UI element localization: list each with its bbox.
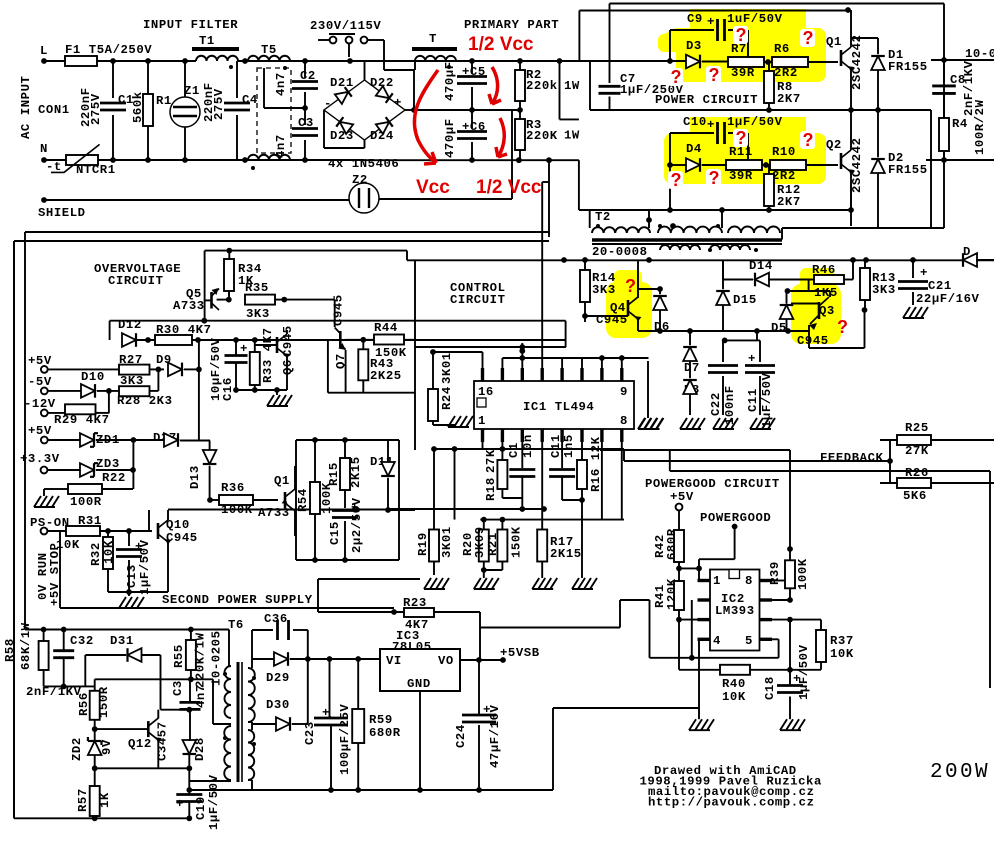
svg-text:R54: R54 <box>296 488 310 512</box>
svg-text:AC INPUT: AC INPUT <box>19 75 33 139</box>
svg-text:39R: 39R <box>729 169 753 183</box>
svg-text:10K: 10K <box>830 647 854 661</box>
svg-text:3K3: 3K3 <box>872 283 896 297</box>
svg-text:47µF/16V: 47µF/16V <box>488 704 502 768</box>
svg-text:Q2: Q2 <box>826 138 842 152</box>
svg-text:68K/1W: 68K/1W <box>19 622 33 670</box>
svg-text:+3.3V: +3.3V <box>20 452 60 466</box>
svg-text:-12V: -12V <box>24 397 56 411</box>
svg-text:C32: C32 <box>70 634 94 648</box>
svg-text:1K5: 1K5 <box>814 286 838 300</box>
svg-text:4x 1N5406: 4x 1N5406 <box>328 157 399 171</box>
svg-text:C3: C3 <box>298 116 314 130</box>
svg-text:R33 4K7: R33 4K7 <box>261 327 275 383</box>
svg-text:4n7: 4n7 <box>274 134 288 158</box>
svg-text:39R: 39R <box>731 66 755 80</box>
svg-text:16: 16 <box>478 385 494 399</box>
svg-text:R57: R57 <box>76 788 90 812</box>
svg-text:10n: 10n <box>521 434 535 458</box>
svg-text:?: ? <box>625 276 636 296</box>
svg-text:R15: R15 <box>327 462 341 486</box>
svg-text:200W: 200W <box>930 761 990 784</box>
svg-text:R40: R40 <box>722 677 746 691</box>
svg-text:+: + <box>707 118 715 132</box>
svg-text:1µF/50V: 1µF/50V <box>727 115 783 129</box>
svg-text:D30: D30 <box>266 698 290 712</box>
svg-text:C9: C9 <box>687 12 703 26</box>
svg-text:Vcc: Vcc <box>416 177 450 198</box>
svg-text:CIRCUIT: CIRCUIT <box>450 293 506 307</box>
svg-text:?: ? <box>803 28 814 48</box>
svg-text:C10: C10 <box>683 115 707 129</box>
svg-text:C19: C19 <box>194 796 208 820</box>
svg-text:4: 4 <box>713 634 721 648</box>
svg-text:D21: D21 <box>330 76 354 90</box>
svg-text:+: + <box>240 342 248 356</box>
svg-text:T1: T1 <box>199 34 215 48</box>
svg-text:1µF/50V: 1µF/50V <box>138 539 152 595</box>
svg-text:D3: D3 <box>686 39 702 53</box>
svg-text:C945: C945 <box>797 334 829 348</box>
svg-text:R19: R19 <box>416 532 430 556</box>
svg-text:C22: C22 <box>709 392 723 416</box>
svg-text:R25: R25 <box>905 421 929 435</box>
svg-text:27K: 27K <box>905 444 929 458</box>
svg-text:D13: D13 <box>188 465 202 489</box>
svg-text:?: ? <box>837 317 848 337</box>
svg-text:A733: A733 <box>173 299 205 313</box>
svg-text:+: + <box>176 797 184 811</box>
svg-text:3K3: 3K3 <box>246 307 270 321</box>
svg-text:1µF/50V: 1µF/50V <box>207 774 221 830</box>
svg-text:C21: C21 <box>928 279 952 293</box>
svg-text:C16: C16 <box>221 377 235 401</box>
svg-text:LM393: LM393 <box>715 604 755 618</box>
svg-text:4n7: 4n7 <box>194 684 208 708</box>
svg-text:+: + <box>920 266 928 280</box>
svg-text:Q3: Q3 <box>819 304 835 318</box>
svg-text:Q12: Q12 <box>128 737 152 751</box>
svg-text:20-0008: 20-0008 <box>592 245 648 259</box>
svg-text:D12: D12 <box>118 318 142 332</box>
svg-text:1K: 1K <box>98 792 112 808</box>
svg-text:R44: R44 <box>374 321 398 335</box>
svg-text:Q1: Q1 <box>274 474 290 488</box>
svg-text:1/2 Vcc: 1/2 Vcc <box>468 34 534 55</box>
svg-text:+: + <box>394 96 402 110</box>
svg-text:C36: C36 <box>264 612 288 626</box>
svg-text:C1: C1 <box>507 442 521 458</box>
svg-text:150K: 150K <box>510 526 524 558</box>
svg-text:3K09: 3K09 <box>473 526 487 558</box>
svg-text:2R2: 2R2 <box>774 66 798 80</box>
svg-text:470µF: 470µF <box>443 61 457 101</box>
svg-text:R32: R32 <box>89 542 103 566</box>
svg-text:T2: T2 <box>595 210 611 224</box>
svg-text:C945: C945 <box>166 531 198 545</box>
svg-text:?: ? <box>709 65 720 85</box>
svg-text:120K: 120K <box>665 578 679 610</box>
svg-text:3K01: 3K01 <box>440 526 454 558</box>
svg-text:2K7: 2K7 <box>777 92 801 106</box>
svg-text:10K: 10K <box>722 690 746 704</box>
svg-text:POWERGOOD: POWERGOOD <box>700 511 771 525</box>
svg-text:?: ? <box>709 168 720 188</box>
svg-text:+5V: +5V <box>28 354 52 368</box>
svg-text:PS-ON: PS-ON <box>30 516 70 530</box>
svg-text:SECOND POWER SUPPLY: SECOND POWER SUPPLY <box>162 593 313 607</box>
svg-text:1: 1 <box>713 574 721 588</box>
svg-text:+5V: +5V <box>670 490 694 504</box>
svg-text:R18: R18 <box>484 477 498 501</box>
svg-text:680R: 680R <box>665 528 679 560</box>
svg-text:ZD2: ZD2 <box>70 737 84 761</box>
svg-text:+: + <box>748 352 756 366</box>
svg-text:275V: 275V <box>212 88 226 120</box>
svg-text:2K15: 2K15 <box>550 547 582 561</box>
svg-text:R55: R55 <box>172 644 186 668</box>
svg-text:R29 4K7: R29 4K7 <box>54 413 110 427</box>
svg-text:R16 12K: R16 12K <box>589 436 603 492</box>
svg-text:2µ2/50V: 2µ2/50V <box>350 497 364 553</box>
svg-text:C11: C11 <box>746 388 760 412</box>
svg-text:R6: R6 <box>774 42 790 56</box>
svg-text:-: - <box>324 97 332 111</box>
svg-text:VI: VI <box>386 654 402 668</box>
svg-text:C3: C3 <box>171 680 185 696</box>
svg-text:R11: R11 <box>729 145 753 159</box>
svg-text:C13: C13 <box>125 564 139 588</box>
svg-text:275V: 275V <box>89 93 103 125</box>
svg-text:C2: C2 <box>300 69 316 83</box>
svg-text:T: T <box>429 32 437 46</box>
svg-text:POWER CIRCUIT: POWER CIRCUIT <box>655 93 758 107</box>
svg-text:1W: 1W <box>564 79 580 93</box>
svg-text:3K3: 3K3 <box>592 283 616 297</box>
svg-text:2SC4242: 2SC4242 <box>850 137 864 193</box>
svg-text:POWERGOOD CIRCUIT: POWERGOOD CIRCUIT <box>645 477 780 491</box>
svg-text:150R: 150R <box>97 686 111 718</box>
svg-text:R59: R59 <box>369 713 393 727</box>
svg-text:1uF/50V: 1uF/50V <box>727 12 783 26</box>
svg-text:R24: R24 <box>440 386 454 410</box>
svg-text:D29: D29 <box>266 671 290 685</box>
svg-text:+: + <box>707 15 715 29</box>
svg-text:100K: 100K <box>796 558 810 590</box>
svg-text:Q6: Q6 <box>281 359 295 375</box>
svg-text:10K: 10K <box>102 540 116 564</box>
svg-text:IC1 TL494: IC1 TL494 <box>523 400 594 414</box>
svg-text:FEEDBACK: FEEDBACK <box>820 451 884 465</box>
svg-text:ZD3: ZD3 <box>96 457 120 471</box>
svg-text:4K7: 4K7 <box>405 618 429 632</box>
svg-text:2K25: 2K25 <box>370 369 402 383</box>
svg-text:1µF/50V: 1µF/50V <box>797 644 811 700</box>
svg-text:D5: D5 <box>771 321 787 335</box>
svg-text:R36: R36 <box>221 481 245 495</box>
svg-text:R37: R37 <box>830 634 854 648</box>
svg-text:CIRCUIT: CIRCUIT <box>108 274 164 288</box>
svg-text:22µF/16V: 22µF/16V <box>916 292 980 306</box>
svg-text:27K: 27K <box>484 449 498 473</box>
svg-text:1n5: 1n5 <box>562 434 576 458</box>
svg-text:L: L <box>40 44 48 58</box>
svg-text:C945: C945 <box>332 294 346 326</box>
svg-text:Z1: Z1 <box>184 84 200 98</box>
svg-text:220k: 220k <box>526 79 558 93</box>
svg-text:SHIELD: SHIELD <box>38 206 86 220</box>
svg-text:230V/115V: 230V/115V <box>310 19 381 33</box>
svg-text:680R: 680R <box>369 726 401 740</box>
svg-text:1: 1 <box>478 414 486 428</box>
svg-text:8: 8 <box>745 574 753 588</box>
svg-text:N: N <box>40 142 48 156</box>
svg-text:100µF/25V: 100µF/25V <box>338 704 352 775</box>
svg-text:FR155: FR155 <box>888 163 928 177</box>
svg-text:4n7: 4n7 <box>274 72 288 96</box>
svg-text:D7: D7 <box>684 361 700 375</box>
svg-text:C4: C4 <box>242 93 258 107</box>
svg-text:560k: 560k <box>131 91 145 123</box>
svg-text:R21: R21 <box>486 532 500 556</box>
svg-text:100R: 100R <box>70 495 102 509</box>
svg-text:D14: D14 <box>749 259 773 273</box>
svg-text:C11: C11 <box>549 434 563 458</box>
svg-text:3K01: 3K01 <box>440 352 454 384</box>
svg-text:5: 5 <box>745 634 753 648</box>
svg-text:GND: GND <box>407 677 431 691</box>
svg-text:C23: C23 <box>303 721 317 745</box>
svg-text:-5V: -5V <box>28 375 52 389</box>
svg-text:1W: 1W <box>564 129 580 143</box>
svg-text:10-0: 10-0 <box>965 47 994 61</box>
svg-text:9: 9 <box>620 385 628 399</box>
svg-text:R10: R10 <box>772 145 796 159</box>
svg-text:T6: T6 <box>228 618 244 632</box>
svg-text:F1 T5A/250V: F1 T5A/250V <box>65 43 152 57</box>
svg-text:1/2 Vcc: 1/2 Vcc <box>476 177 542 198</box>
svg-text:470µF: 470µF <box>443 118 457 158</box>
svg-text:C18: C18 <box>763 676 777 700</box>
svg-text:INPUT FILTER: INPUT FILTER <box>143 18 238 32</box>
svg-text:D10: D10 <box>81 370 105 384</box>
svg-text:2SC4242: 2SC4242 <box>850 34 864 90</box>
svg-text:R22: R22 <box>102 471 126 485</box>
svg-text:D31: D31 <box>110 634 134 648</box>
svg-text:R7: R7 <box>731 42 747 56</box>
svg-text:Q10: Q10 <box>166 518 190 532</box>
svg-text:Q1: Q1 <box>826 35 842 49</box>
svg-text:D4: D4 <box>686 142 702 156</box>
svg-text:100R/2W: 100R/2W <box>973 99 987 155</box>
svg-text:?: ? <box>671 67 682 87</box>
svg-text:220K: 220K <box>526 129 558 143</box>
svg-text:2K15: 2K15 <box>349 456 363 488</box>
svg-text:2R2: 2R2 <box>772 169 796 183</box>
svg-text:R28 2K3: R28 2K3 <box>117 394 173 408</box>
svg-text:10-0205: 10-0205 <box>210 630 224 686</box>
svg-text:D23: D23 <box>330 129 354 143</box>
svg-text:2K7: 2K7 <box>777 195 801 209</box>
svg-text:FR155: FR155 <box>888 60 928 74</box>
svg-text:A733: A733 <box>258 506 290 520</box>
svg-text:R1: R1 <box>156 94 172 108</box>
svg-text:+5VSB: +5VSB <box>500 646 540 660</box>
svg-text:+5V: +5V <box>28 424 52 438</box>
svg-text:?: ? <box>671 170 682 190</box>
svg-text:PRIMARY PART: PRIMARY PART <box>464 18 559 32</box>
svg-text:C24: C24 <box>454 724 468 748</box>
svg-text:D15: D15 <box>733 293 757 307</box>
svg-text:C15: C15 <box>328 521 342 545</box>
svg-text:CON1: CON1 <box>38 103 70 117</box>
svg-text:5K6: 5K6 <box>903 489 927 503</box>
svg-text:R56: R56 <box>77 692 91 716</box>
svg-text:?: ? <box>803 130 814 150</box>
svg-text:R35: R35 <box>245 281 269 295</box>
svg-text:D28: D28 <box>193 737 207 761</box>
svg-text:R4: R4 <box>952 117 968 131</box>
svg-text:VO: VO <box>438 654 454 668</box>
svg-text:http://pavouk.comp.cz: http://pavouk.comp.cz <box>648 796 815 810</box>
svg-text:8: 8 <box>620 414 628 428</box>
